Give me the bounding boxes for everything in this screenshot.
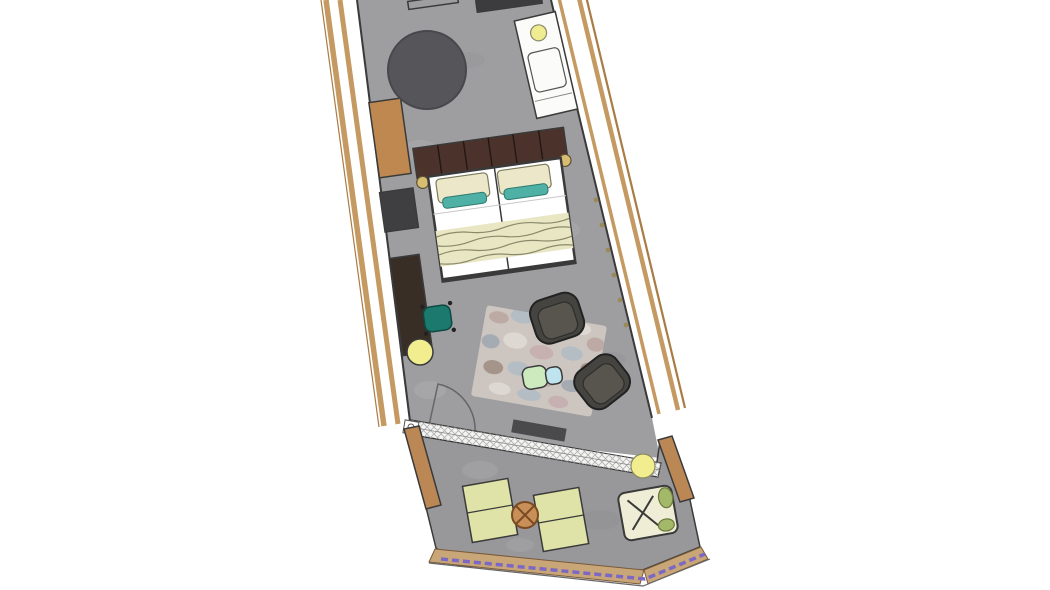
terrace-pouf — [631, 454, 655, 478]
desk-pouf — [407, 339, 433, 365]
glider-dot — [600, 223, 605, 228]
desk-chair-seat — [422, 304, 452, 333]
round-wood-table — [512, 502, 538, 528]
lounger-right — [533, 487, 588, 551]
glider-dot — [594, 198, 599, 203]
floor-plan-canvas — [0, 0, 1050, 590]
glider-dot — [606, 248, 611, 253]
concrete-speckle — [462, 461, 498, 479]
glider-dot — [612, 273, 617, 278]
minibar-cabinet — [379, 188, 418, 232]
concrete-speckle — [414, 381, 446, 399]
glider-dot — [624, 323, 629, 328]
glider-dot — [618, 298, 623, 303]
round-rug — [388, 31, 466, 109]
side-table-green-top — [521, 364, 548, 390]
lounger-left — [462, 478, 517, 542]
side-table-blue-top — [545, 366, 564, 386]
folding-table — [617, 485, 679, 542]
lounger-pad — [462, 478, 517, 542]
floor-plan-svg — [0, 0, 1050, 590]
concrete-speckle — [506, 538, 534, 552]
